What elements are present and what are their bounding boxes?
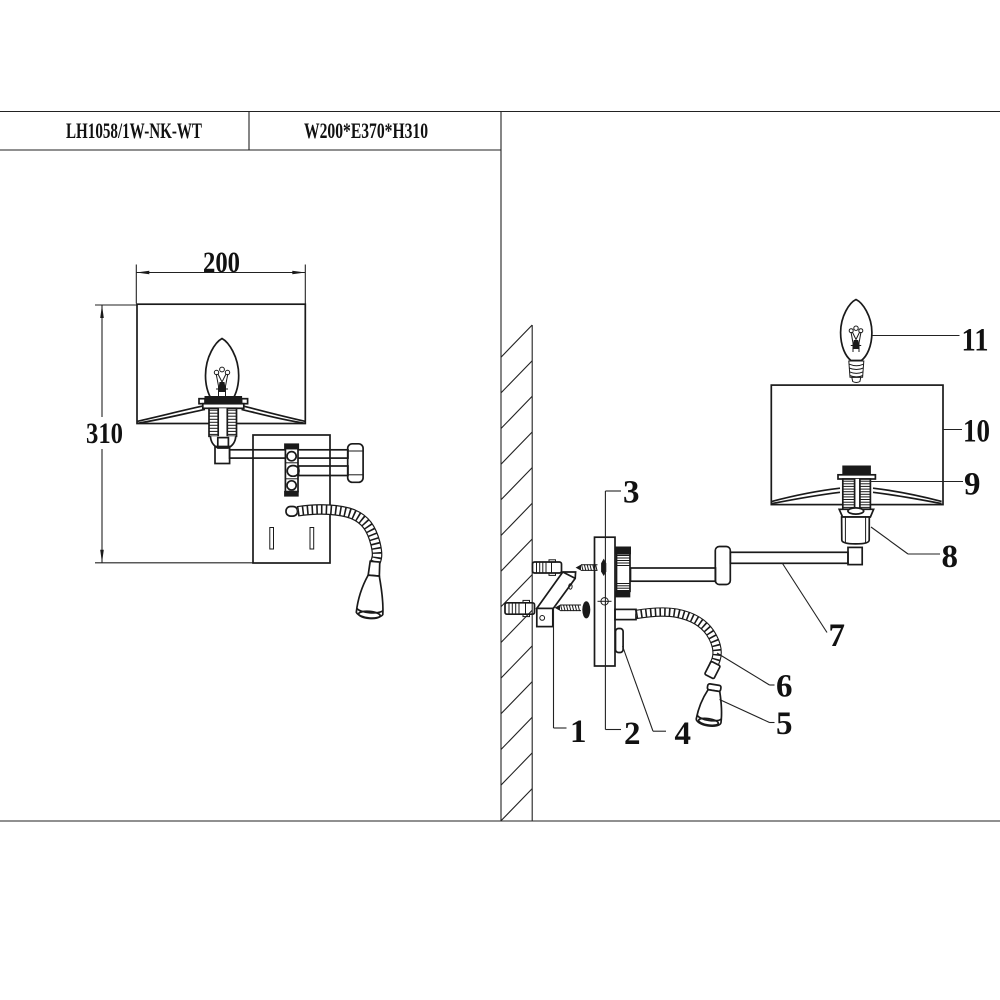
svg-text:10: 10	[963, 414, 990, 450]
svg-text:3: 3	[623, 475, 640, 511]
svg-text:9: 9	[964, 467, 981, 503]
svg-text:200: 200	[203, 246, 240, 279]
svg-text:8: 8	[942, 539, 959, 575]
svg-text:11: 11	[962, 323, 989, 359]
svg-text:LH1058/1W-NK-WT: LH1058/1W-NK-WT	[66, 118, 202, 143]
svg-text:4: 4	[675, 716, 692, 752]
svg-text:2: 2	[624, 716, 641, 752]
svg-text:7: 7	[829, 618, 846, 654]
svg-text:6: 6	[776, 669, 793, 705]
svg-text:1: 1	[570, 714, 587, 750]
svg-text:5: 5	[776, 706, 793, 742]
svg-text:W200*E370*H310: W200*E370*H310	[304, 118, 428, 143]
svg-text:310: 310	[86, 417, 123, 450]
